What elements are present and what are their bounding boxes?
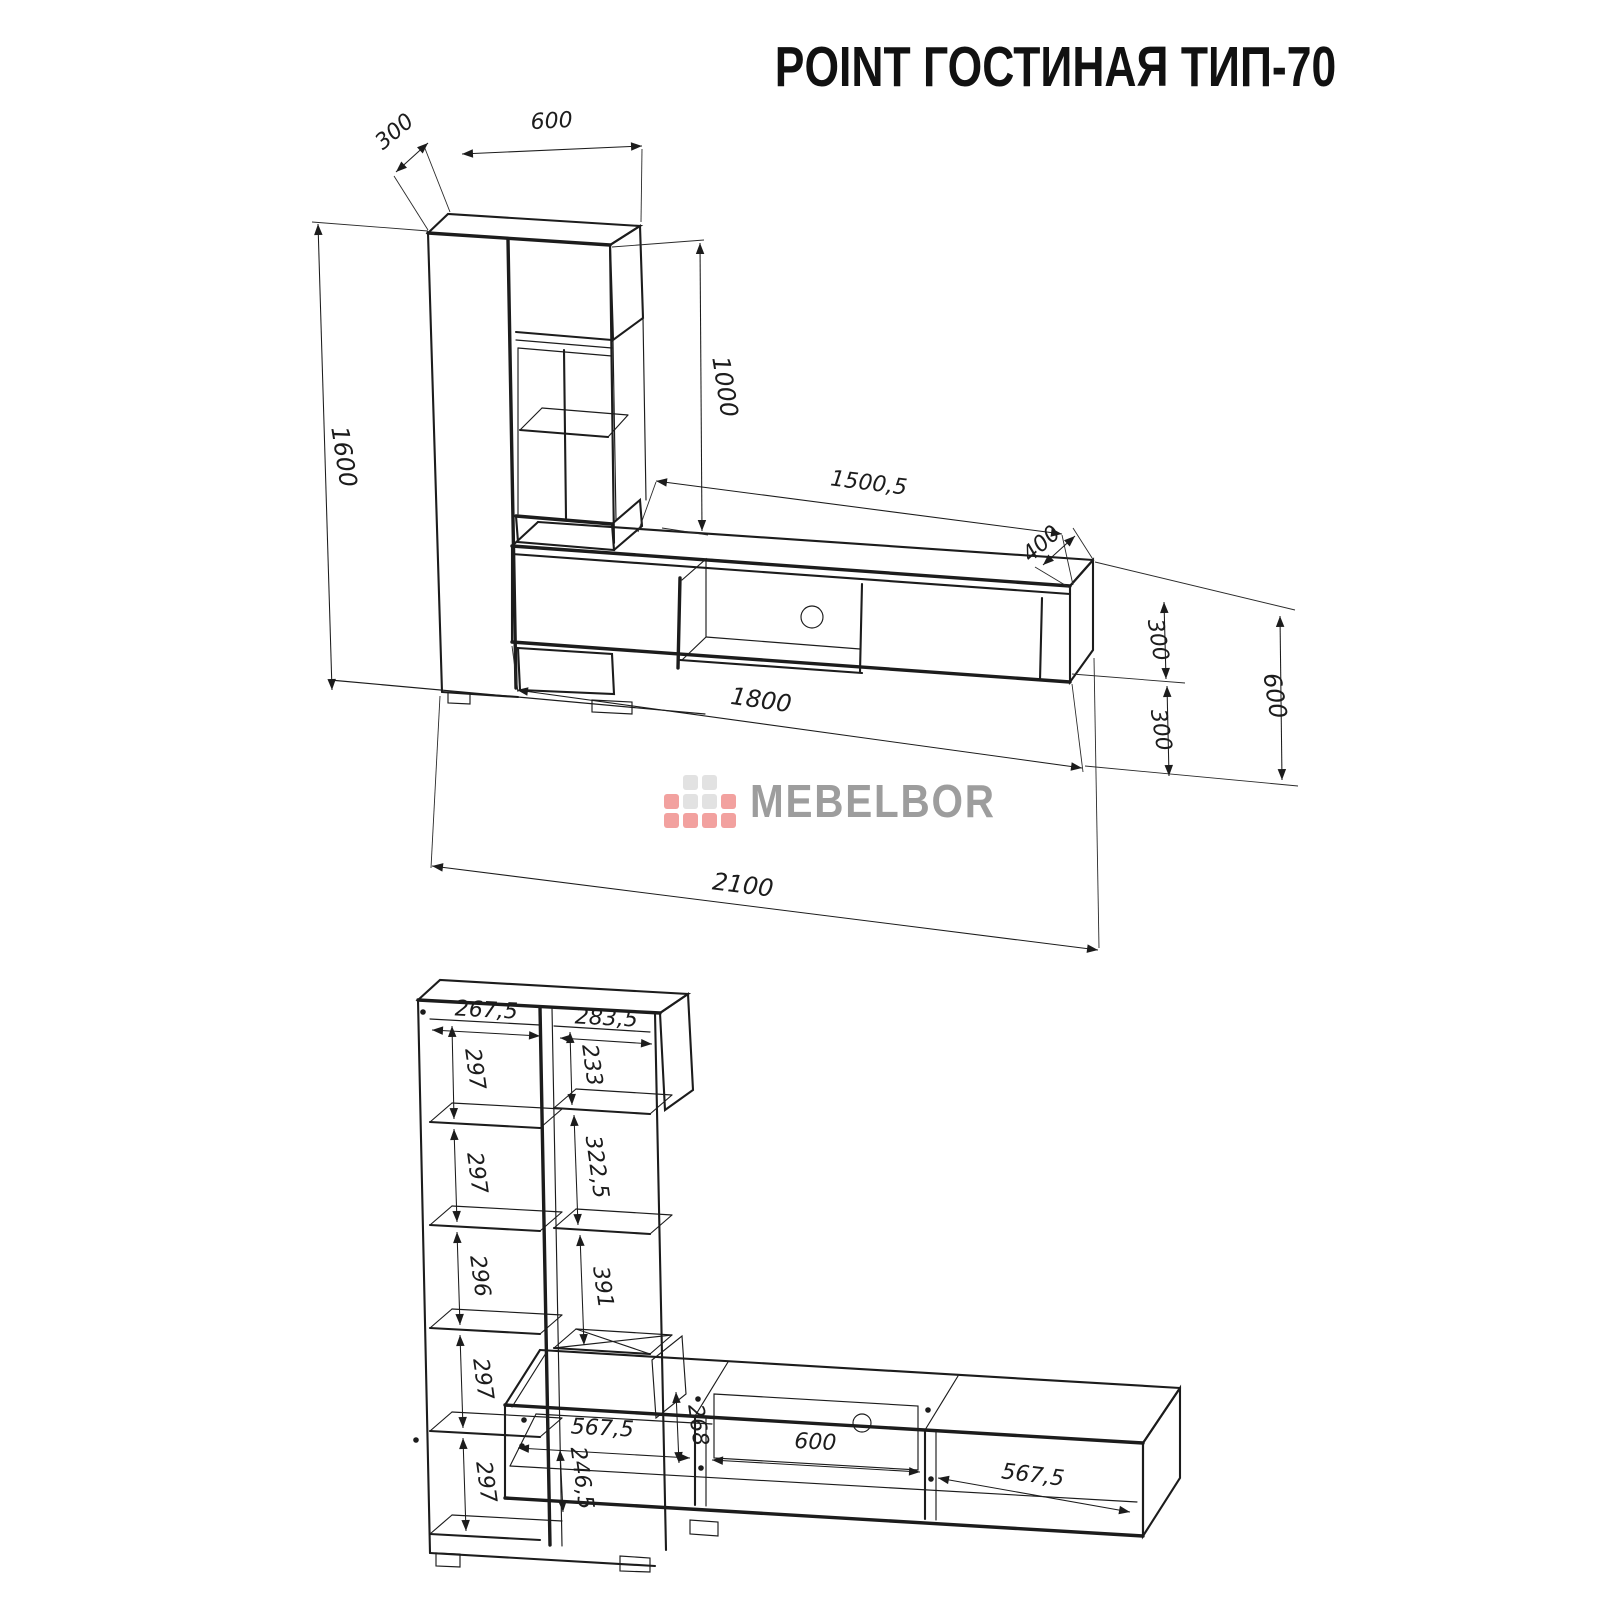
dim-right-cell-3: 391 — [587, 1265, 618, 1310]
logo-pixel — [683, 813, 698, 828]
page: POINT ГОСТИНАЯ ТИП-70 — [0, 0, 1600, 1600]
dim-floor-clearance: 300 — [1145, 707, 1176, 752]
dim-right-cell-1: 233 — [576, 1043, 607, 1088]
dim-total-length: 2100 — [711, 867, 775, 902]
upper-tv-bench — [512, 522, 1093, 682]
logo-pixel — [664, 794, 679, 809]
dim-right-cell-2: 322,5 — [580, 1134, 614, 1200]
logo-pixel — [702, 813, 717, 828]
lower-tall-cabinet — [418, 980, 693, 1572]
logo-text: MEBELBOR — [750, 774, 996, 828]
logo-pixels-icon — [664, 775, 736, 828]
lower-tv-bench — [413, 1009, 1180, 1536]
dim-showcase-height: 1000 — [706, 354, 743, 419]
dim-top-width: 600 — [530, 108, 573, 135]
upper-glass-door — [518, 318, 646, 520]
dim-bench-inner-height: 268 — [682, 1403, 713, 1448]
dim-left-cell-2: 297 — [461, 1151, 492, 1196]
logo-pixel — [721, 794, 736, 809]
dim-bench-length: 1800 — [729, 682, 793, 718]
upper-tall-cabinet — [330, 214, 705, 714]
cable-hole-lower — [853, 1414, 871, 1432]
logo-pixel — [683, 775, 698, 790]
dim-bench-depth: 400 — [1018, 521, 1066, 568]
dim-left-cell-1: 297 — [459, 1047, 490, 1092]
dim-left-cell-4: 297 — [467, 1357, 498, 1402]
dim-left-cell-3: 296 — [464, 1254, 495, 1299]
dim-right-total-height: 600 — [1257, 671, 1292, 721]
logo-pixel — [721, 813, 736, 828]
dim-bench-right-width: 567,5 — [1000, 1459, 1066, 1491]
logo-pixel — [721, 775, 736, 790]
lower-dimensions: 267,5 283,5 297 297 296 297 297 233 322,… — [432, 996, 1130, 1531]
logo-pixel — [664, 813, 679, 828]
dim-right-column-width: 283,5 — [574, 1004, 638, 1032]
logo-pixel — [702, 794, 717, 809]
dim-left-column-width: 267,5 — [454, 996, 518, 1024]
fitting-dots — [413, 1009, 934, 1482]
dim-total-height: 1600 — [325, 424, 362, 489]
cable-hole-upper — [801, 606, 823, 628]
dim-bench-middle-width: 600 — [794, 1429, 837, 1456]
dim-bench-top-span: 1500,5 — [829, 466, 908, 500]
mebelbor-logo: MEBELBOR — [664, 774, 1029, 828]
dim-bench-height: 300 — [1142, 617, 1173, 662]
dim-bench-left-width: 567,5 — [570, 1414, 634, 1442]
logo-pixel — [683, 794, 698, 809]
logo-pixel — [664, 775, 679, 790]
lower-view: 267,5 283,5 297 297 296 297 297 233 322,… — [413, 980, 1180, 1572]
dim-left-cell-5: 297 — [470, 1460, 501, 1505]
logo-pixel — [702, 775, 717, 790]
dim-top-depth: 300 — [371, 109, 419, 155]
